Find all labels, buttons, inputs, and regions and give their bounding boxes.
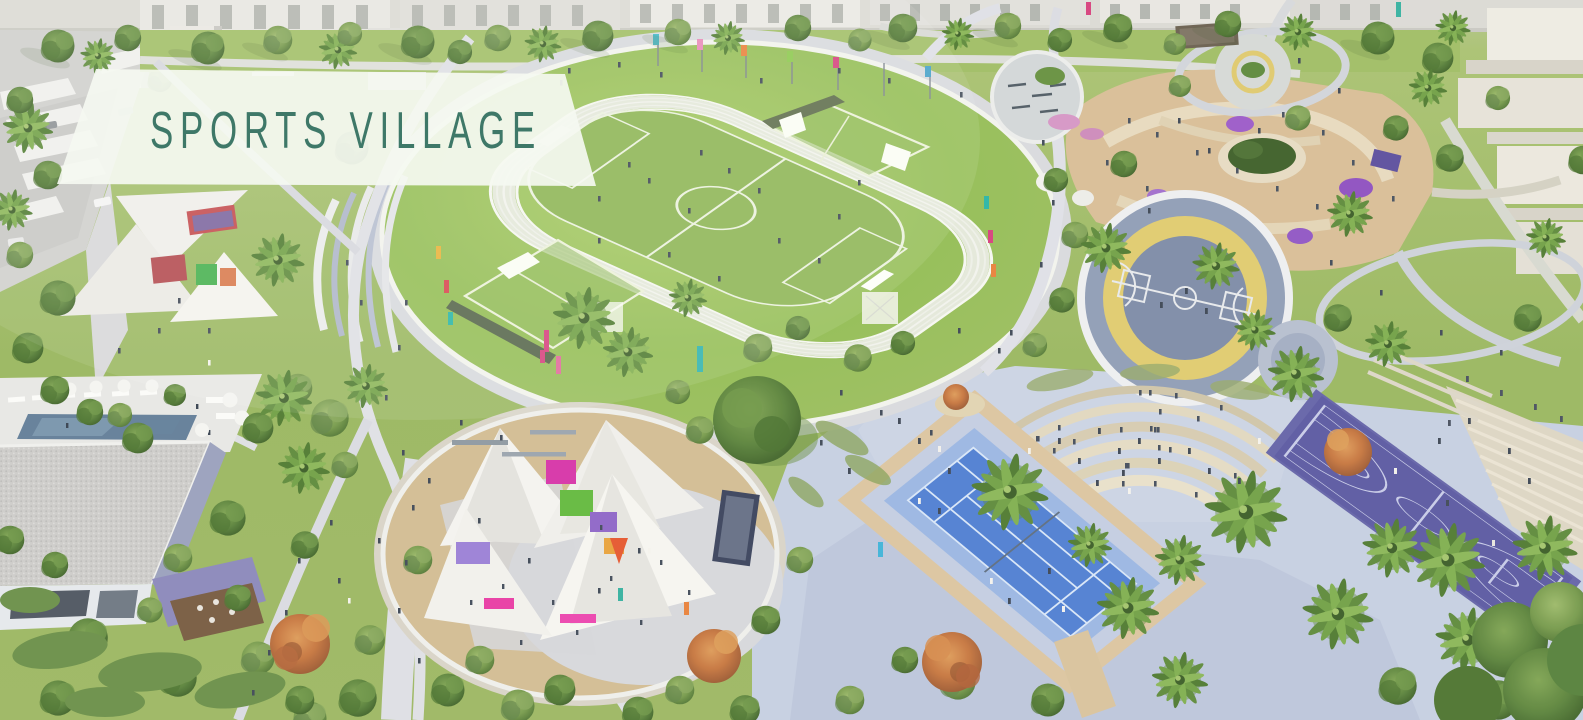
svg-text:SPORTS VILLAGE: SPORTS VILLAGE xyxy=(150,102,542,160)
